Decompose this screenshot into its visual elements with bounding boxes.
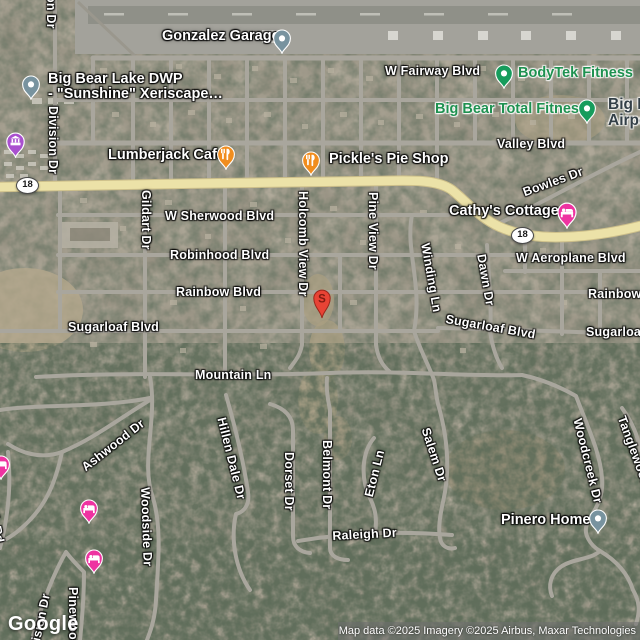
lodging-pin-woodside[interactable] (79, 498, 99, 524)
restaurant-pin-icon (301, 150, 321, 176)
map-pin-icon (588, 508, 608, 534)
poi-label-big-bear-total-fitness[interactable]: Big Bear Total Fitness (435, 102, 587, 117)
road-label-division-dr: Division Dr (46, 106, 60, 174)
poi-pin-big-bear-lake-dwp[interactable] (21, 74, 41, 100)
road-label-w-sherwood-blvd: W Sherwood Blvd (165, 209, 274, 223)
road-label-gildart-dr: Gildart Dr (139, 190, 153, 250)
poi-pin-big-bear-total-fitness[interactable] (577, 98, 597, 124)
map-pin-icon (21, 74, 41, 100)
road-label-belmont-dr: Belmont Dr (320, 440, 334, 509)
poi-pin-pickles-pie-shop[interactable] (301, 150, 321, 176)
lodging-pin-icon (0, 454, 11, 480)
road-label-sugarloaf-blvd-right: Sugarloaf Blvd (586, 325, 640, 339)
poi-pin-pinero-home[interactable] (588, 508, 608, 534)
map-pin-icon (272, 28, 292, 54)
road-label-valley-blvd: Valley Blvd (497, 137, 565, 151)
poi-label-dwp-line1: Big Bear Lake DWP (48, 72, 223, 87)
poi-label-big-bear-lake-dwp[interactable]: Big Bear Lake DWP - "Sunshine" Xeriscape… (48, 72, 223, 102)
poi-label-pickles-pie-shop[interactable]: Pickle's Pie Shop (329, 152, 449, 167)
fitness-pin-icon (577, 98, 597, 124)
highway-18-shield-east: 18 (511, 227, 534, 244)
poi-label-bodytek-fitness[interactable]: BodyTek Fitness (518, 66, 633, 81)
marker-letter: S (318, 293, 326, 305)
poi-pin-lumberjack-cafe[interactable] (216, 144, 236, 170)
road-label-robinhood-blvd: Robinhood Blvd (170, 248, 269, 262)
selected-location-marker[interactable]: S (312, 287, 332, 319)
poi-label-cathys-cottages[interactable]: Cathy's Cottages (449, 204, 567, 219)
road-label-rainbow-blvd: Rainbow Blvd (176, 285, 261, 299)
road-label-rainbow-blvd-right: Rainbow Blvd (588, 287, 640, 301)
airport-label-line2: Airport (608, 113, 640, 129)
poi-pin-cathys-cottages[interactable] (556, 201, 576, 227)
poi-pin-gonzalez-garage[interactable] (272, 28, 292, 54)
poi-label-big-bear-airport: Big Bear Airport (608, 97, 640, 129)
poi-pin-bodytek-fitness[interactable] (494, 63, 514, 89)
airport-label-line1: Big Bear (608, 97, 640, 113)
map-attribution: Map data ©2025 Imagery ©2025 Airbus, Max… (338, 622, 640, 640)
road-label-holcomb-view-dr: Holcomb View Dr (296, 191, 310, 297)
airport-runway (75, 0, 640, 56)
lodging-pin-icon (84, 548, 104, 574)
poi-label-lumberjack-cafe[interactable]: Lumberjack Cafe (108, 148, 225, 163)
road-label-division-dr-top-fragment: on Dr (44, 0, 58, 29)
lodging-pin-left-edge[interactable] (0, 454, 11, 480)
lodging-pin-icon (556, 201, 578, 229)
poi-label-gonzalez-garage[interactable]: Gonzalez Garage (162, 29, 280, 44)
road-label-sugarloaf-blvd: Sugarloaf Blvd (68, 320, 159, 334)
poi-label-pinero-home[interactable]: Pinero Home (501, 513, 590, 528)
road-label-pine-view-dr: Pine View Dr (366, 192, 380, 270)
lodging-pin-pinewood[interactable] (84, 548, 104, 574)
red-teardrop-marker-icon: S (312, 287, 332, 319)
restaurant-pin-icon (216, 144, 236, 170)
google-logo[interactable]: Google (8, 613, 79, 636)
road-label-w-aeroplane-blvd: W Aeroplane Blvd (516, 251, 626, 265)
satellite-map-canvas[interactable]: on Dr Division Dr W Fairway Blvd Valley … (0, 0, 640, 640)
road-label-w-fairway-blvd: W Fairway Blvd (385, 64, 480, 78)
fitness-pin-icon (494, 63, 514, 89)
attraction-pin[interactable] (5, 131, 25, 157)
attraction-pin-icon (5, 131, 26, 158)
poi-label-dwp-line2: - "Sunshine" Xeriscape… (48, 87, 223, 102)
road-label-dorset-dr: Dorset Dr (282, 452, 296, 511)
road-label-mountain-ln: Mountain Ln (195, 368, 272, 382)
highway-18-shield-west: 18 (16, 177, 39, 194)
road-label-woodside-dr: Woodside Dr (138, 487, 155, 567)
lodging-pin-icon (79, 498, 99, 524)
